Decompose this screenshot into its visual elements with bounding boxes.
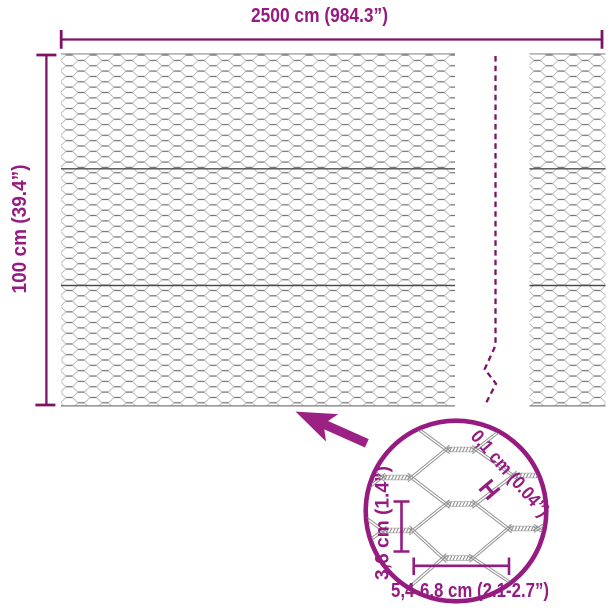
svg-text:2500 cm (984.3”): 2500 cm (984.3”) <box>251 5 388 27</box>
svg-text:100 cm (39.4”): 100 cm (39.4”) <box>9 165 31 294</box>
svg-text:3,6 cm (1.4”): 3,6 cm (1.4”) <box>373 466 394 580</box>
svg-text:5,4-6,8 cm (2.1-2.7”): 5,4-6,8 cm (2.1-2.7”) <box>391 580 549 602</box>
